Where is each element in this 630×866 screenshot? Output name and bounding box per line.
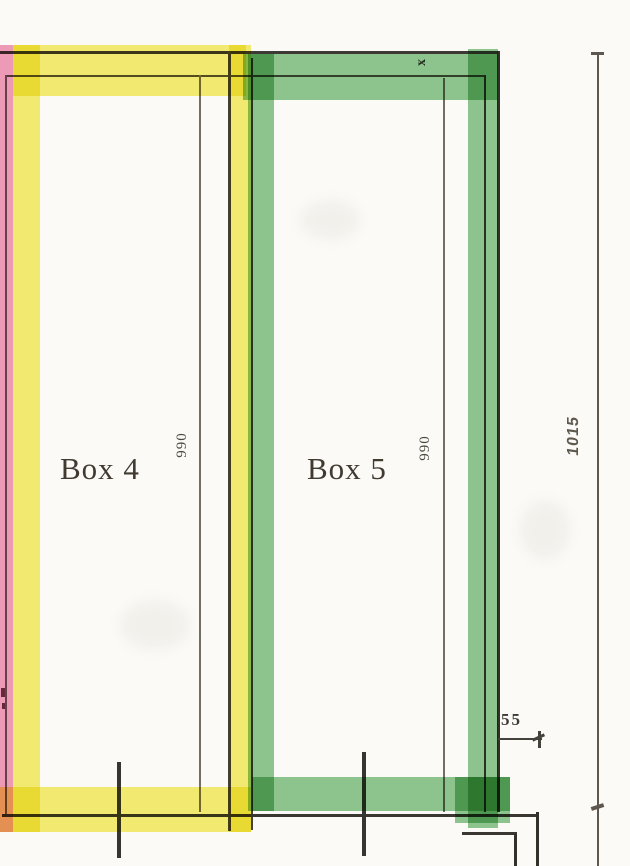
step-line-vertical-1 [536, 812, 539, 866]
highlight-green-left [248, 54, 274, 811]
scan-smudge [520, 500, 570, 560]
highlight-green-corner [455, 777, 510, 823]
dim-text-55: 55 [501, 710, 522, 730]
highlight-yellow-bottom [0, 787, 251, 832]
scanned-plan-drawing: Box 4 Box 5 990 990 1015 55 x [0, 0, 630, 866]
box5-label: Box 5 [307, 451, 387, 487]
dim-text-1015: 1015 [549, 412, 599, 459]
dim-text-990-box4: 990 [160, 428, 204, 462]
dim-text-990-box5: 990 [403, 431, 447, 465]
highlight-yellow-top [13, 45, 246, 96]
dim-tick-top-icon [591, 52, 604, 55]
step-line-vertical-2 [514, 834, 517, 866]
highlight-green-top [243, 54, 497, 100]
box4-label: Box 4 [60, 451, 140, 487]
highlight-pink-strip [0, 45, 13, 832]
highlight-green-right [468, 49, 498, 828]
scan-smudge [300, 200, 360, 240]
scan-smudge [120, 600, 190, 650]
highlight-yellow-left [13, 45, 40, 832]
step-line-horizontal-2 [462, 832, 517, 835]
